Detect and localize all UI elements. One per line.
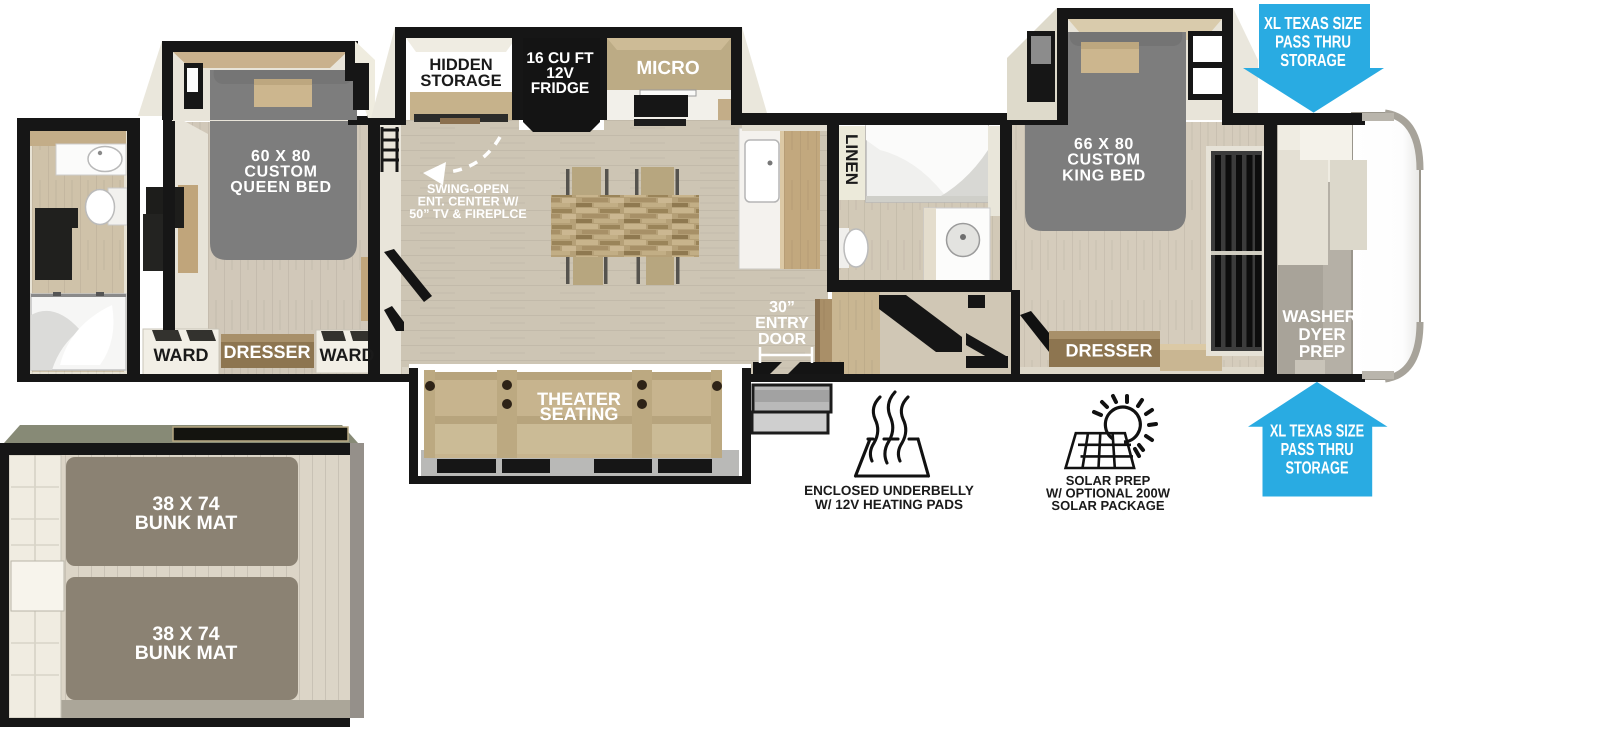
svg-text:PREP: PREP (1299, 342, 1345, 361)
svg-text:50” TV & FIREPLCE: 50” TV & FIREPLCE (409, 207, 526, 221)
svg-text:FRIDGE: FRIDGE (531, 80, 590, 97)
svg-text:BUNK MAT: BUNK MAT (135, 642, 238, 664)
svg-text:WARD: WARD (320, 345, 375, 365)
svg-text:ENTRY: ENTRY (755, 315, 809, 332)
svg-text:STORAGE: STORAGE (1280, 50, 1346, 70)
svg-text:W/ 12V HEATING PADS: W/ 12V HEATING PADS (815, 497, 963, 512)
svg-text:CUSTOM: CUSTOM (1067, 152, 1140, 169)
svg-text:CUSTOM: CUSTOM (244, 164, 317, 181)
svg-text:66 X 80: 66 X 80 (1074, 136, 1134, 153)
svg-text:30”: 30” (769, 299, 795, 316)
svg-text:STORAGE: STORAGE (420, 72, 501, 90)
svg-text:PASS THRU: PASS THRU (1275, 32, 1351, 52)
svg-text:PASS THRU: PASS THRU (1281, 439, 1354, 459)
svg-text:LINEN: LINEN (842, 134, 861, 185)
svg-text:ENCLOSED UNDERBELLY: ENCLOSED UNDERBELLY (804, 483, 974, 498)
svg-text:MICRO: MICRO (636, 58, 699, 79)
svg-text:XL TEXAS SIZE: XL TEXAS SIZE (1264, 13, 1362, 33)
svg-text:SEATING: SEATING (540, 404, 619, 424)
svg-text:KING BED: KING BED (1062, 168, 1146, 185)
svg-text:BUNK MAT: BUNK MAT (135, 512, 238, 534)
svg-text:QUEEN BED: QUEEN BED (230, 179, 331, 196)
svg-text:DOOR: DOOR (758, 331, 806, 348)
svg-text:DRESSER: DRESSER (1065, 341, 1152, 361)
svg-text:STORAGE: STORAGE (1286, 458, 1349, 478)
svg-text:XL TEXAS SIZE: XL TEXAS SIZE (1270, 421, 1364, 441)
svg-text:WASHER/: WASHER/ (1282, 307, 1362, 326)
svg-text:SOLAR PACKAGE: SOLAR PACKAGE (1051, 498, 1164, 513)
svg-text:DRESSER: DRESSER (223, 342, 310, 362)
svg-text:WARD: WARD (154, 345, 209, 365)
svg-text:60 X 80: 60 X 80 (251, 148, 311, 165)
